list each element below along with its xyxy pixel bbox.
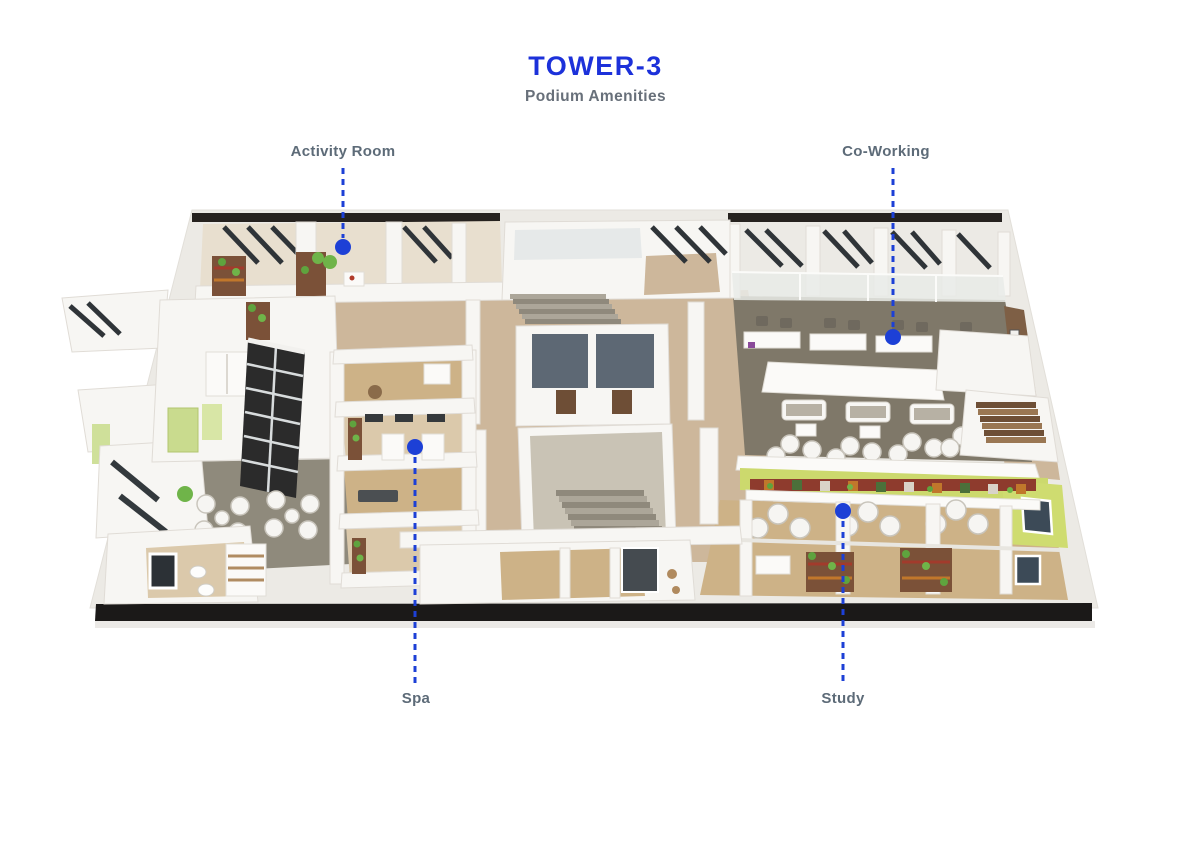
- co-working-label: Co-Working: [842, 143, 930, 160]
- plant: [357, 555, 364, 562]
- plant: [808, 552, 816, 560]
- spa-bed: [382, 434, 404, 460]
- study-chair: [768, 504, 788, 524]
- study-chair: [880, 516, 900, 536]
- coffee-table: [796, 424, 816, 436]
- dark-cabinet: [622, 548, 658, 592]
- coffee-table: [860, 426, 880, 438]
- elevator-shaft: [596, 334, 654, 388]
- bookshelf: [212, 256, 246, 296]
- plant: [177, 486, 193, 502]
- co-working-marker-dot: [885, 329, 901, 345]
- lime-cabinet: [202, 404, 222, 440]
- desk: [756, 556, 790, 574]
- pot: [672, 586, 680, 594]
- activity-room-marker-dot: [335, 239, 351, 255]
- lime-cabinet: [168, 408, 198, 452]
- lounge-table: [215, 511, 229, 525]
- plant: [353, 435, 360, 442]
- lounge-chair: [299, 521, 317, 539]
- plant: [828, 562, 836, 570]
- lounge-chair: [267, 491, 285, 509]
- spa-bed: [424, 364, 450, 384]
- wall-screen: [395, 414, 413, 422]
- study-chair: [858, 502, 878, 522]
- lounge-chair: [231, 497, 249, 515]
- top-left-slab-edge: [192, 213, 500, 222]
- study-chair: [968, 514, 988, 534]
- elevator-door: [556, 390, 576, 414]
- lounge-chair: [265, 519, 283, 537]
- ottoman: [803, 441, 821, 459]
- plant: [301, 266, 309, 274]
- plant: [258, 314, 266, 322]
- plant: [354, 541, 361, 548]
- plant: [232, 268, 240, 276]
- elevator-door: [612, 390, 632, 414]
- stair-right: [960, 390, 1058, 462]
- plant: [218, 258, 226, 266]
- wall-screen: [427, 414, 445, 422]
- plant: [350, 421, 357, 428]
- plant: [922, 562, 930, 570]
- plant: [323, 255, 337, 269]
- wall-art: [1016, 556, 1040, 584]
- page-subtitle: Podium Amenities: [0, 88, 1191, 106]
- bottom-center-rooms: [400, 526, 742, 604]
- desk: [810, 334, 866, 350]
- page: TOWER-3 Podium Amenities Activity Room C…: [0, 0, 1191, 842]
- study-chair: [946, 500, 966, 520]
- lounge-chair: [197, 495, 215, 513]
- ottoman: [863, 443, 881, 461]
- plant: [248, 304, 256, 312]
- bench: [358, 490, 398, 502]
- plant: [902, 550, 910, 558]
- pot: [667, 569, 677, 579]
- desk: [876, 336, 932, 352]
- plant: [312, 252, 324, 264]
- top-right-slab-edge: [728, 213, 1002, 222]
- study-marker-dot: [835, 503, 851, 519]
- bottom-slab-edge: [95, 603, 1092, 621]
- page-title: TOWER-3: [0, 52, 1191, 82]
- framed-art: [150, 554, 176, 588]
- spa-marker-dot: [407, 439, 423, 455]
- study-label: Study: [821, 690, 864, 707]
- elevator-shaft: [532, 334, 588, 388]
- bath-shelf: [226, 544, 266, 596]
- toilet: [198, 584, 214, 596]
- header: TOWER-3 Podium Amenities: [0, 0, 1191, 106]
- spa-label: Spa: [402, 690, 430, 707]
- glass-partition-grid: [240, 340, 305, 498]
- ottoman: [941, 439, 959, 457]
- basket: [368, 385, 382, 399]
- spa-bed: [422, 434, 444, 460]
- floor-plan-render: [0, 0, 1191, 842]
- bathroom-zone: [104, 526, 266, 604]
- lounge-table: [285, 509, 299, 523]
- activity-room-label: Activity Room: [291, 143, 396, 160]
- lounge-chair: [301, 495, 319, 513]
- wall-screen: [365, 414, 383, 422]
- plant: [940, 578, 948, 586]
- stairwell-upper: [510, 294, 621, 324]
- study-chair: [790, 518, 810, 538]
- toilet: [190, 566, 206, 578]
